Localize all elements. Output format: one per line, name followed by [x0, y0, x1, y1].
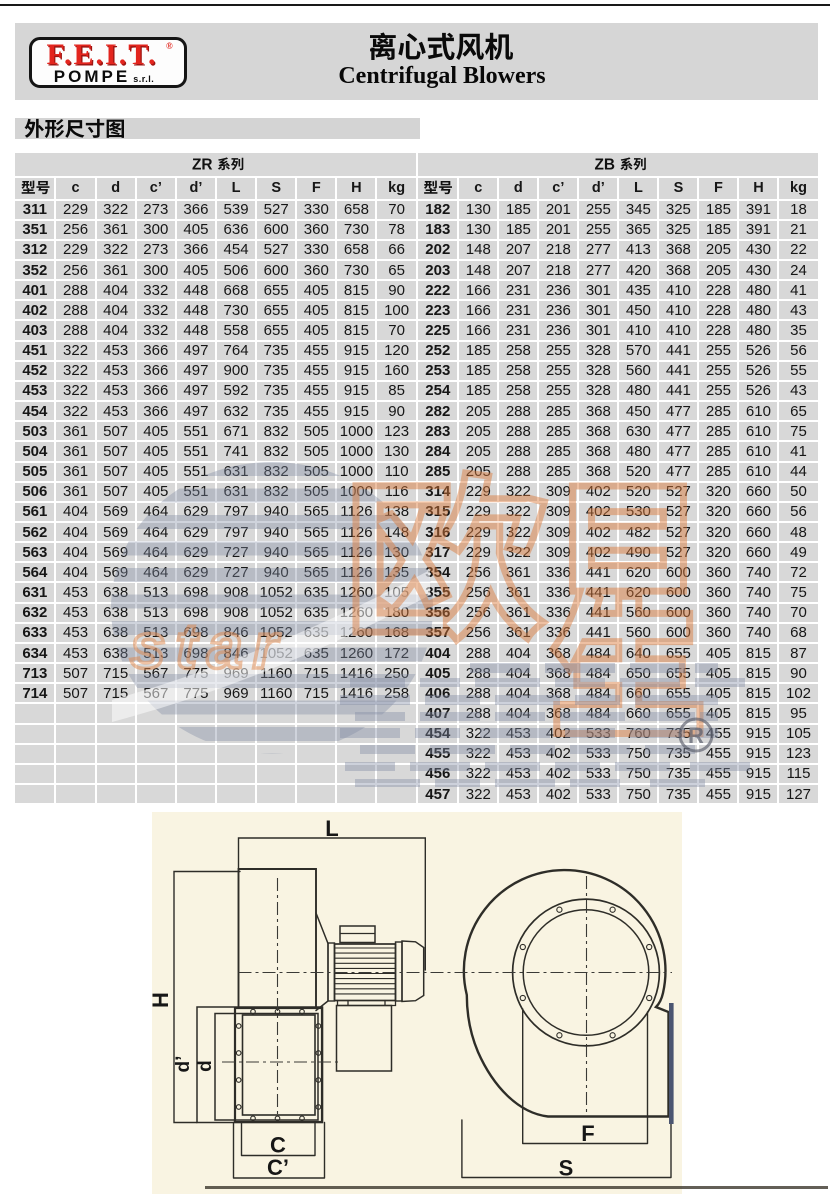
- svg-text:S: S: [559, 1156, 574, 1181]
- svg-text:L: L: [325, 816, 338, 841]
- svg-text:R: R: [688, 723, 704, 748]
- svg-text:C’: C’: [267, 1155, 289, 1180]
- svg-text:F: F: [581, 1121, 594, 1146]
- svg-text:H: H: [152, 992, 173, 1008]
- svg-text:d: d: [195, 1060, 216, 1072]
- svg-text:C: C: [270, 1133, 286, 1158]
- svg-text:star: star: [130, 610, 287, 682]
- svg-text:d’: d’: [173, 1056, 194, 1073]
